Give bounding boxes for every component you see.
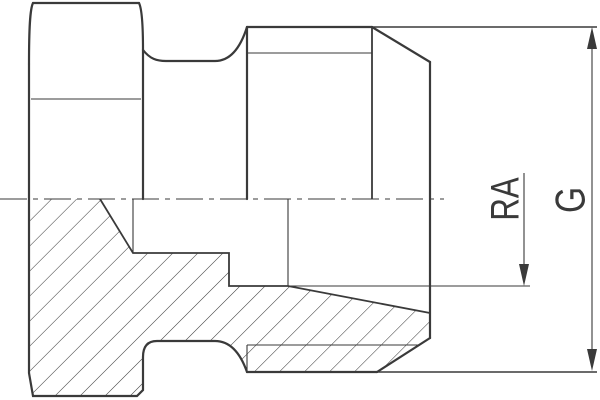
g-arrowhead-top — [587, 27, 597, 49]
neck-groove-outline — [143, 27, 247, 61]
ra-arrowhead — [519, 264, 529, 286]
hex-head-outline — [29, 3, 143, 199]
engineering-drawing-canvas: RA G — [0, 0, 600, 400]
end-chamfer-top — [372, 27, 430, 62]
label-g: G — [548, 187, 594, 213]
label-ra: RA — [483, 177, 528, 220]
section-hatching — [29, 199, 430, 396]
fitting-section-drawing: RA G — [0, 0, 600, 400]
g-arrowhead-bottom — [587, 349, 597, 371]
dimension-ra: RA — [288, 173, 530, 286]
